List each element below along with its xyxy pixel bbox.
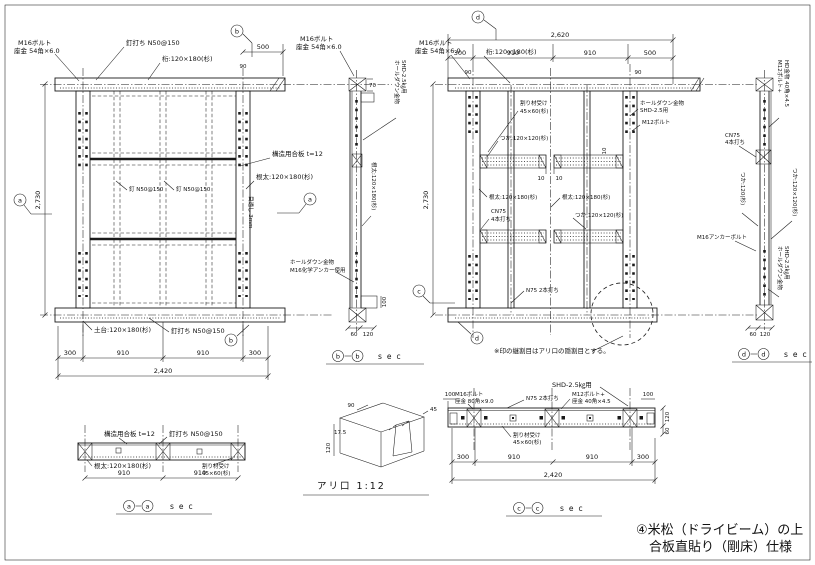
label-holddown: ホールダウン金物 [776,246,784,291]
detail-dovetail: 90 17.5 120 45 アリ口 1:12 [303,403,437,495]
label-m16-bolt: M16ボルト [455,390,483,398]
marker-letter: b [229,337,233,345]
detail-reference-circle [591,283,653,345]
section-marker-a-left: a [14,194,52,214]
title-sec-word: sec [170,502,198,511]
dim-910: 910 [194,469,206,477]
label-sill: 土台:120×180(杉) [94,325,151,334]
title-letter: a [127,503,131,511]
label-uke-1: 割り材受け [513,431,541,439]
dim-90: 90 [635,70,642,76]
dim-300: 300 [457,453,469,461]
section-marker-d-bottom: d [458,322,483,344]
label-nail: 釘打ち N50@150 [169,429,223,438]
title-letter: d [742,351,746,359]
dim-300: 300 [64,349,76,357]
label-cn75-qty: 4本打ち [725,138,745,146]
label-holddown-type: SHD-2.5㎏用 [782,246,790,280]
section-view-c: 120 60 SHD-2.5㎏用 M16ボルト 座金 80角×9.0 N75 2… [443,381,671,516]
title-sec-a: a a sec [116,501,212,515]
bolt-rows-left-column [80,112,247,297]
dim-total-2420: 2,420 [154,367,173,375]
label-n75: N75 2本打ち [526,394,559,402]
dim-910: 910 [117,349,129,357]
marker-letter: c [417,288,421,296]
label-m16-washer: 座金 54角×6.0 [14,46,60,55]
dim-500: 500 [644,49,656,57]
title-letter: c [517,505,521,513]
section-marker-c-left: c [413,285,455,303]
title-sec-word: sec [560,504,588,513]
label-tsuka-2: つか:120×120(杉) [575,211,623,219]
label-member: つか:120×120(杉) [791,168,799,216]
label-m16-bolt: M16ボルト [300,35,333,43]
blocking-band-mid [480,155,623,168]
dim-910: 910 [508,453,520,461]
label-cn75: CN75 [725,133,740,139]
marker-letter: d [476,14,480,22]
label-holddown: ホールダウン金物 [640,99,685,107]
dim-height-right: 2,730 [422,191,430,210]
dim-910: 910 [197,349,209,357]
label-anchor-1: ホールダウン金物 [290,258,335,266]
dim-120: 120 [760,332,771,338]
label-tsuka: つか:120(杉) [739,172,747,205]
label-n75: N75 2本打ち [526,286,559,294]
label-uke-1: 割り材受け [520,99,548,107]
label-m16-washer: 座金 80角×9.0 [455,397,494,405]
marker-letter: a [18,197,22,205]
dim-total-2620: 2,620 [551,31,570,39]
dim-17-5: 17.5 [334,430,347,436]
dim-60: 60 [351,332,358,338]
dim-100: 100 [382,296,388,307]
label-member: 根太:120×180(杉) [370,162,378,210]
title-letter: b [355,353,359,361]
title-sec-b: b b sec [326,351,424,365]
label-nail-bottom: 釘打ち N50@150 [171,326,225,335]
title-letter: b [336,353,340,361]
dim-height-left: 2,730 [34,191,42,210]
label-m16-washer: 座金 54角×6.0 [415,46,461,55]
marker-letter: b [235,28,239,36]
marker-letter: a [308,196,312,204]
dim-120: 120 [363,332,374,338]
dim-45: 45 [430,407,437,413]
blocking-band-low [480,230,623,243]
title-sec-c: c c sec [506,503,602,517]
dims-bottom-sec-c: 300 910 910 300 2,420 [450,427,658,484]
hidden-studs [92,91,236,308]
dim-10: 10 [556,176,563,182]
label-m12-bolt: M12ボルト+ [572,390,605,398]
dim-60: 60 [665,427,671,434]
title-sec-d: d d sec [732,349,812,363]
footer-spec-note: ④米松（ドライビーム）の上 合板直貼り（剛床）仕様 [636,523,803,555]
title-sec-word: sec [378,352,406,361]
label-plywood: 構造用合板 t=12 [272,149,323,158]
dim-90: 90 [348,403,355,409]
label-girder: 桁:120×180(杉) [162,54,213,63]
section-marker-d-top: d [472,11,496,40]
label-holddown: ホールダウン金物 [393,60,401,105]
dim-300: 300 [637,453,649,461]
section-view-a: 構造用合板 t=12 釘打ち N50@150 根太:120×180(杉) 割り材… [78,425,245,514]
label-m16-bolt: M16ボルト [419,39,452,47]
dims-bottom-left-panel: 300 910 910 300 2,420 [56,322,271,380]
title-letter: a [146,503,150,511]
label-m12-bolt: M12ボルト+ [776,60,784,93]
label-m12-washer: 座金 40角×4.5 [572,397,611,405]
dim-total-2420: 2,420 [544,471,563,479]
section-marker-b-bottom: b [225,325,249,346]
drawing-sheet: 2,730 a a b b 500 90 M16ボルト 座 [0,0,815,565]
label-tsuka-1: つか:120×120(杉) [500,134,548,142]
dim-120: 120 [326,442,332,453]
label-m12-bolt: M12ボルト [642,118,670,126]
dim-60: 60 [750,332,757,338]
label-nail-mid-left: 釘 N50@150 [129,185,164,193]
label-joist-left: 根太:120×180(杉) [489,193,537,201]
dim-90: 90 [240,64,247,70]
footer-line-2: 合板直貼り（剛床）仕様 [649,540,792,555]
label-uke-2: 45×60(杉) [520,107,548,115]
label-m16-bolt: M16ボルト [18,39,51,47]
dim-500: 500 [257,43,269,51]
title-sec-word: sec [784,350,812,359]
dim-910: 910 [586,453,598,461]
dim-100: 100 [445,392,456,398]
marker-letter: d [475,335,479,343]
dim-10: 10 [538,176,545,182]
label-nail-mid-right: 釘 N50@150 [176,185,211,193]
section-marker-a-right: a [277,193,316,213]
label-cn75: CN75 [491,209,506,215]
dim-910: 910 [118,469,130,477]
dim-10: 10 [602,147,608,154]
title-letter: d [761,351,765,359]
label-uke-2: 45×60(杉) [513,438,541,446]
label-nail-top: 釘打ち N50@150 [126,38,180,47]
dims-top-right-panel: 2,620 300 910 910 500 [446,31,676,84]
cad-drawing: 2,730 a a b b 500 90 M16ボルト 座 [0,0,815,565]
label-uke-2: 45×60(杉) [202,469,230,477]
dim-910: 910 [584,49,596,57]
label-anchor-bolt: M16アンカーボルト [697,233,747,241]
plan-view-left: 2,730 a a b b 500 90 M16ボルト 座 [14,25,392,380]
label-holddown-type: SHD-2.5㎏用 [399,60,407,94]
label-gap: 目透し 3mm [247,196,255,228]
label-joist: 根太:120×180(杉) [256,172,313,181]
label-holddown-type: SHD-2.5用 [640,107,668,114]
label-plywood: 構造用合板 t=12 [104,429,155,438]
elevation-view-right: 2,620 300 910 910 500 d 90 90 [413,11,757,355]
dim-90: 90 [465,70,472,76]
dim-70: 70 [369,83,376,89]
footer-line-1: ④米松（ドライビーム）の上 [636,523,803,538]
note-joint: ※印の継割目はアリ口の隠割目とする。 [494,346,610,355]
label-girder: 桁:120×180(杉) [486,47,537,56]
dim-100: 100 [643,392,654,398]
dim-120: 120 [665,411,671,422]
dim-300: 300 [249,349,261,357]
title-letter: c [536,505,540,513]
label-hd-hardware: HD金物 40角×4.5 [783,60,791,107]
detail-title: アリ口 1:12 [317,481,386,492]
label-joist-center: 根太:120×180(杉) [562,193,610,201]
label-shd: SHD-2.5㎏用 [552,381,592,390]
label-cn75-qty: 4本打ち [491,215,511,223]
label-m16-washer: 座金 54角×6.0 [296,42,342,51]
section-view-d: 60 120 M12ボルト+ HD金物 40角×4.5 CN75 4本打ち つか… [697,60,812,362]
